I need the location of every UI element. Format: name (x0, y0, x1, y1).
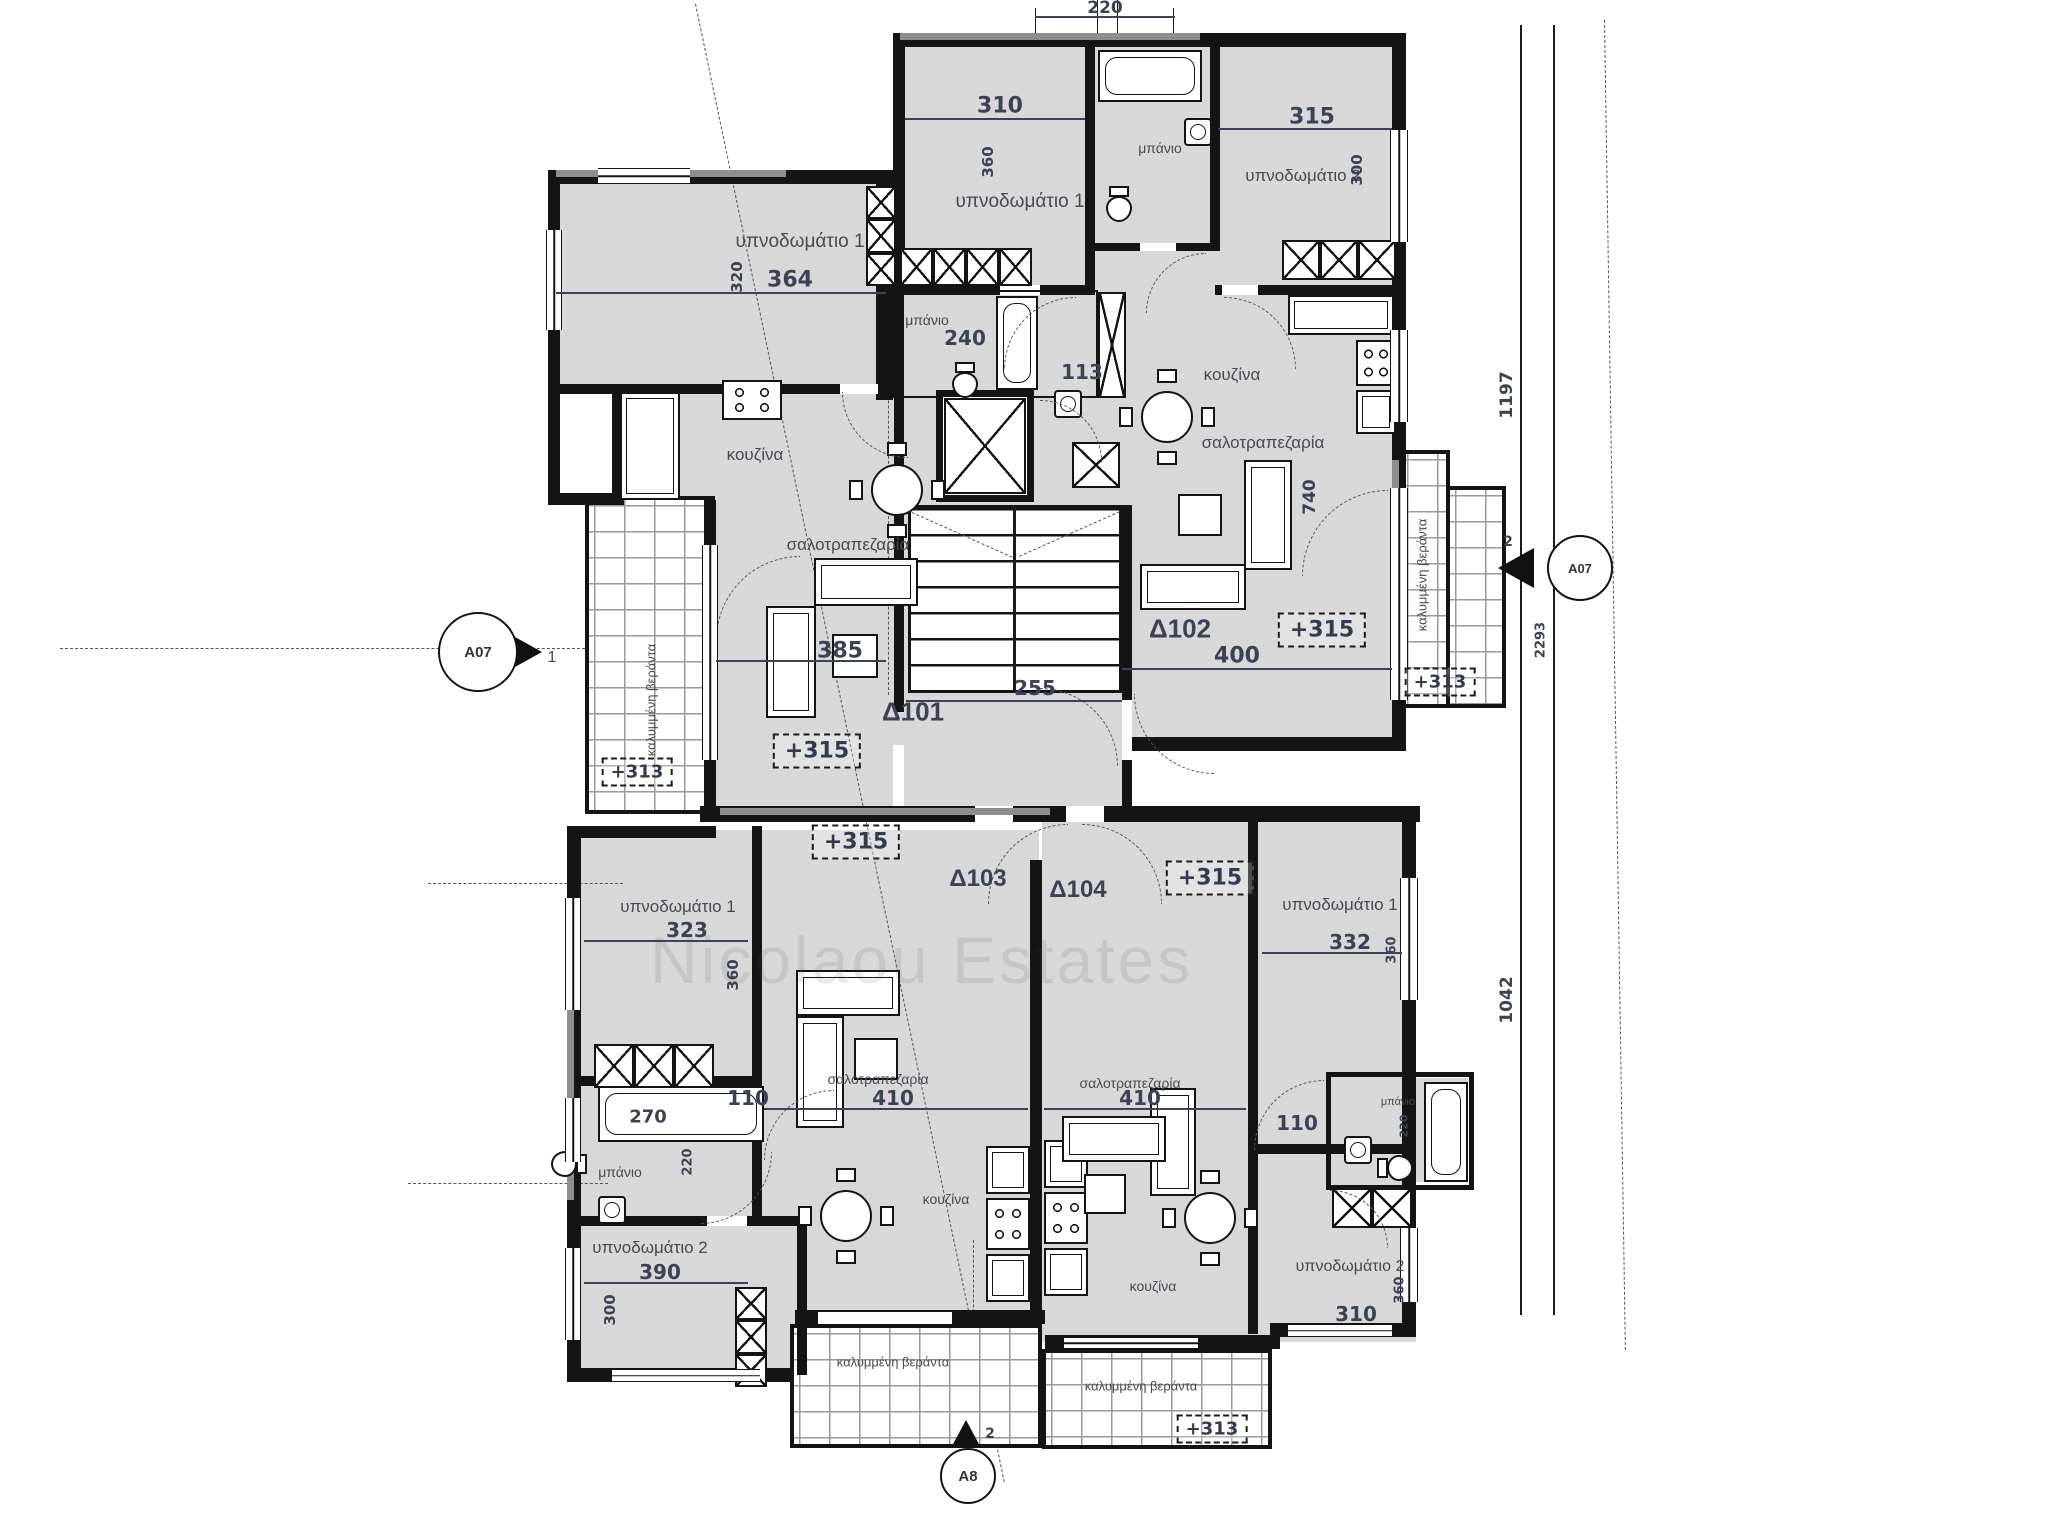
window (598, 168, 690, 184)
closet-cell (1358, 240, 1396, 280)
window (565, 898, 581, 1010)
dim-site-1042: 1042 (1497, 976, 1517, 1023)
room-label-d102-bed2: υπνοδωμάτιο 2 (1245, 166, 1360, 186)
section-marker-left-number: 1 (548, 649, 557, 667)
window (612, 1369, 760, 1382)
level-box-veranda-left: +313 (602, 758, 673, 787)
dim-d104-bed2-depth: 360 (1393, 1276, 1408, 1303)
section-marker-left-label: A07 (464, 644, 492, 661)
dim-d101-bath: 240 (944, 326, 986, 350)
apartment-label-d103: Δ103 (949, 865, 1006, 893)
fridge-d104 (1044, 1248, 1088, 1296)
veranda-left-label: καλυμμένη βεράντα (644, 644, 659, 756)
dim-d102-bed2-depth: 300 (1348, 154, 1366, 185)
room-label-d103-kitchen: κουζίνα (923, 1191, 970, 1207)
window-veranda-door-d104 (1064, 1337, 1198, 1349)
section-marker-right-label: A07 (1568, 561, 1592, 576)
chair (1201, 407, 1215, 427)
chair (1200, 1252, 1220, 1266)
round-table (871, 464, 923, 516)
dim-d101-living: 385 (817, 639, 863, 664)
level-box-veranda-right: +313 (1405, 668, 1476, 697)
level-box-d102: +315 (1278, 613, 1366, 648)
window (1400, 878, 1418, 1000)
window (546, 230, 562, 330)
closet-d102-bed1 (900, 248, 1032, 286)
closet-d102-bed2 (1282, 240, 1396, 280)
dim-d104-corridor: 110 (1276, 1111, 1318, 1135)
dining-table-d103 (798, 1168, 894, 1264)
stove-d104 (1044, 1192, 1088, 1244)
closet-cell (866, 186, 896, 219)
apartment-label-d102: Δ102 (1149, 614, 1211, 645)
stove-d101 (722, 380, 782, 420)
closet-cell (966, 248, 999, 286)
closet-cell (594, 1044, 634, 1088)
dining-table-d102 (1119, 369, 1215, 465)
veranda-right-label: καλυμμένη βεράντα (1415, 519, 1430, 631)
room-label-d103-bed2: υπνοδωμάτιο 2 (592, 1238, 707, 1258)
watermark-text: Nicolaou Estates (650, 922, 1193, 998)
round-table (1141, 391, 1193, 443)
section-marker-bottom: A8 (940, 1448, 996, 1504)
room-label-d104-kitchen: κουζίνα (1130, 1278, 1177, 1294)
veranda-bottom-right-label: καλυμμένη βεράντα (1085, 1379, 1197, 1394)
chair (849, 480, 863, 500)
level-box-d104: +315 (1166, 861, 1254, 896)
level-box-veranda-bottom: +313 (1177, 1415, 1248, 1444)
door-arc-d102-entry (1134, 694, 1214, 774)
dim-d103-bed2-depth: 300 (601, 1294, 619, 1325)
elevator-x (944, 398, 1026, 494)
dim-d102-living-width: 400 (1214, 644, 1260, 669)
section-marker-left: A07 (438, 612, 518, 692)
stair-stringer (1013, 505, 1016, 693)
closet-party-top (866, 186, 896, 286)
section-marker-right: A07 (1547, 535, 1613, 601)
wall-segment (1085, 33, 1095, 295)
coffee-table (1084, 1174, 1126, 1214)
dim-d103-tub: 270 (629, 1107, 667, 1128)
window (1390, 130, 1408, 242)
chair (798, 1206, 812, 1226)
veranda-bottom-left (790, 1324, 1042, 1448)
dim-d103-bed2-width: 390 (639, 1260, 681, 1284)
site-line-right-2 (1553, 25, 1555, 1315)
dim-hall-width: 255 (1014, 676, 1056, 700)
wall-segment (548, 170, 560, 505)
closet-cell (1320, 240, 1358, 280)
sofa (1244, 460, 1292, 570)
closet-cell (674, 1044, 714, 1088)
closet-cell (735, 1320, 767, 1353)
toilet-icon (1377, 1155, 1413, 1181)
coffee-table (1178, 494, 1222, 536)
room-label-d103-bath: μπάνιο (598, 1164, 642, 1180)
dim-d101-bed1-width: 364 (767, 268, 813, 293)
dim-d104-bed2-width: 310 (1335, 1302, 1377, 1326)
dim-d103-corridor: 110 (727, 1086, 769, 1110)
door-gap-d104-entry (1066, 806, 1104, 822)
dim-d101-bath-door: 113 (1061, 360, 1103, 384)
site-boundary-right-dashed (1604, 20, 1626, 1350)
round-table (1184, 1192, 1236, 1244)
stove-d103 (986, 1198, 1030, 1250)
chair (1157, 369, 1177, 383)
closet-cell (634, 1044, 674, 1088)
room-label-d104-bath: μπάνιο (1381, 1096, 1415, 1108)
room-label-d104-bed2: υπνοδωμάτιο 2 (1296, 1258, 1405, 1276)
room-label-d102-kitchen: κουζίνα (1204, 365, 1261, 385)
closet-d103 (594, 1044, 714, 1088)
dim-site-2293: 2293 (1534, 622, 1549, 658)
chair (1162, 1208, 1176, 1228)
closet-cell (900, 248, 933, 286)
counter-d102 (1288, 295, 1394, 335)
apartment-label-d104: Δ104 (1049, 876, 1106, 904)
window (1390, 330, 1408, 422)
door-gap (1122, 700, 1132, 760)
closet-cell (999, 248, 1032, 286)
dim-d104-living: 410 (1119, 1086, 1161, 1110)
round-table (820, 1190, 872, 1242)
dim-d104-bath-depth: 220 (1398, 1115, 1411, 1138)
chair (1157, 451, 1177, 465)
window (565, 1098, 581, 1162)
door-gap (1222, 285, 1258, 295)
door-gap (1140, 243, 1176, 251)
bathtub-d102 (1098, 50, 1202, 102)
toilet-icon (1106, 186, 1132, 222)
dim-d104-bed1-depth: 360 (1385, 936, 1400, 963)
sofa (1062, 1116, 1166, 1162)
room-label-d102-living: σαλοτραπεζαρία (1202, 433, 1325, 453)
floor-plan-canvas: 220 (0, 0, 2048, 1536)
dim-d104-bed1-width: 332 (1329, 930, 1371, 954)
window (565, 1248, 581, 1340)
chair (1244, 1208, 1258, 1228)
dim-d103-living: 410 (872, 1086, 914, 1110)
dim-d101-bed1-depth: 320 (728, 261, 746, 292)
dim-top-220: 220 (1087, 0, 1123, 18)
wall-segment (1122, 505, 1132, 806)
room-label-d104-bed1: υπνοδωμάτιο 1 (1282, 895, 1397, 915)
dining-table-d104 (1162, 1170, 1258, 1266)
room-label-d103-bed1: υπνοδωμάτιο 1 (620, 897, 735, 917)
closet-cell (933, 248, 966, 286)
room-label-d101-kitchen: κουζίνα (727, 445, 784, 465)
dim-d102-bed2-width: 315 (1289, 105, 1335, 130)
closet-cell (866, 253, 896, 286)
fridge-d103 (986, 1254, 1030, 1302)
sofa (1140, 564, 1246, 610)
room-label-d102-bath: μπάνιο (1138, 140, 1182, 156)
level-box-d101: +315 (773, 734, 861, 769)
wall-accent (720, 808, 1050, 815)
site-line-right-1 (1520, 25, 1522, 1315)
dim-d103-bath-depth: 220 (681, 1148, 696, 1175)
sink-counter-d103 (986, 1146, 1030, 1194)
counter-d101 (620, 392, 680, 500)
apartment-label-d101: Δ101 (882, 697, 944, 728)
door-gap (818, 1312, 952, 1324)
wall-segment (567, 826, 716, 838)
room-label-d102-bed1: υπνοδωμάτιο 1 (955, 191, 1084, 213)
wall-accent (900, 33, 1200, 40)
closet-cell (735, 1287, 767, 1320)
sink-icon (1184, 118, 1212, 146)
dim-d102-bed1-width: 310 (977, 94, 1023, 119)
axis-left-horizontal-2 (428, 883, 623, 884)
toilet-icon (952, 362, 978, 398)
room-label-d101-bath: μπάνιο (905, 312, 949, 328)
dim-d102-bed1-depth: 360 (979, 146, 997, 177)
chair (836, 1250, 856, 1264)
veranda-bottom-left-label: καλυμμένη βεράντα (837, 1355, 949, 1370)
dim-site-1197: 1197 (1497, 371, 1517, 418)
bathtub-d104 (1424, 1082, 1468, 1182)
level-box-d103: +315 (812, 825, 900, 860)
section-arrow-bottom-icon (952, 1420, 980, 1446)
apartment-d101-area-upper (556, 178, 893, 394)
sink-icon (598, 1196, 626, 1224)
room-label-d101-bed1: υπνοδωμάτιο 1 (735, 231, 864, 253)
chair (836, 1168, 856, 1182)
closet-cell (1282, 240, 1320, 280)
elevator-x-icon (944, 398, 1026, 494)
closet-cell (866, 219, 896, 252)
chair (931, 480, 945, 500)
section-arrow-right-icon (1498, 548, 1534, 588)
chair (880, 1206, 894, 1226)
chair (1200, 1170, 1220, 1184)
chair (1119, 407, 1133, 427)
room-label-d103-living: σαλοτραπεζαρία (827, 1071, 928, 1087)
dim-d102-living-depth: 740 (1300, 479, 1320, 515)
section-marker-bottom-label: A8 (958, 1468, 977, 1485)
sink-icon (1344, 1136, 1372, 1164)
dim-line (556, 292, 886, 294)
room-label-d101-living: σαλοτραπεζαρία (787, 535, 910, 555)
window-veranda-door-d101 (702, 545, 718, 760)
sofa (814, 558, 918, 606)
dim-tick-bottom: 2 (985, 1426, 995, 1442)
